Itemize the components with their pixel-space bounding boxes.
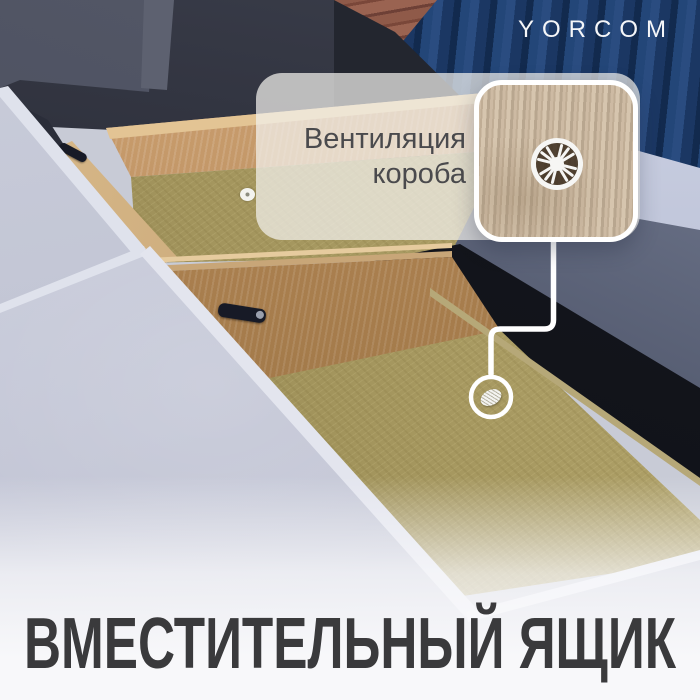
headline: ВМЕСТИТЕЛЬНЫЙ ЯЩИК (0, 596, 700, 692)
callout-label: Вентиляция короба (256, 73, 466, 240)
callout-label-line1: Вентиляция (304, 122, 466, 157)
callout-label-line2: короба (373, 157, 466, 192)
brand-logo: YORCOM (510, 16, 674, 44)
vent-grommet-icon (521, 128, 594, 201)
product-card: Вентиляция короба YORCOM ВМЕСТИТЕЛЬНЫЙ Я… (0, 0, 700, 700)
callout-zoom-box (474, 80, 638, 242)
headline-text: ВМЕСТИТЕЛЬНЫЙ ЯЩИК (24, 602, 677, 684)
